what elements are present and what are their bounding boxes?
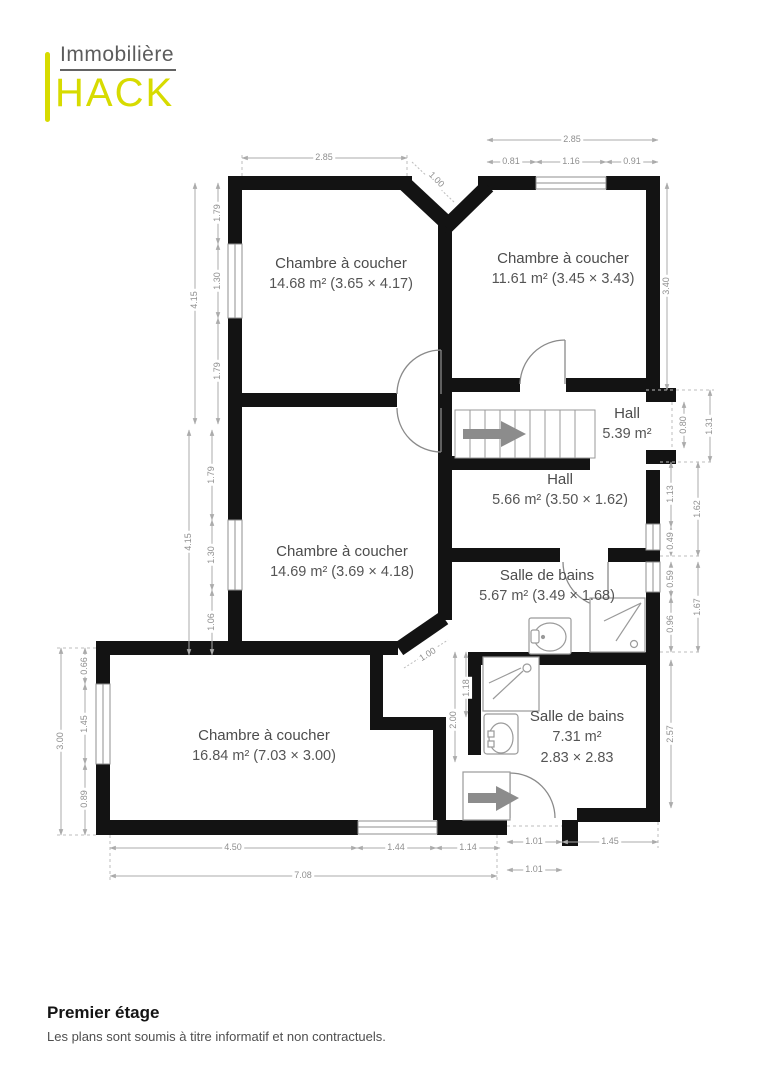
dimension-label: 4.15: [184, 531, 194, 553]
room-name: Chambre à coucher: [492, 248, 635, 269]
dimension-label: 1.79: [207, 464, 217, 486]
room-label-chambre-3: Chambre à coucher 14.69 m² (3.69 × 4.18): [270, 541, 414, 583]
room-area: 11.61 m² (3.45 × 3.43): [492, 269, 635, 290]
dimension-label: 1.31: [705, 415, 715, 437]
room-area: 14.68 m² (3.65 × 4.17): [269, 274, 413, 295]
room-name: Chambre à coucher: [192, 725, 336, 746]
dimension-label: 1.45: [80, 713, 90, 735]
dimension-label: 0.49: [666, 530, 676, 552]
room-label-hall-2: Hall 5.66 m² (3.50 × 1.62): [492, 469, 628, 511]
dimension-label: 0.80: [679, 414, 689, 436]
room-area: 5.67 m² (3.49 × 1.68): [479, 586, 615, 607]
disclaimer-text: Les plans sont soumis à titre informatif…: [47, 1029, 386, 1044]
dimension-label: 1.67: [693, 596, 703, 618]
room-label-chambre-4: Chambre à coucher 16.84 m² (7.03 × 3.00): [192, 725, 336, 767]
room-name: Chambre à coucher: [270, 541, 414, 562]
dimension-label: 4.50: [222, 843, 244, 853]
dimension-label: 3.40: [662, 275, 672, 297]
dimension-label: 3.00: [56, 730, 66, 752]
room-area: 5.39 m²: [602, 424, 651, 445]
room-name: Hall: [602, 403, 651, 424]
dimension-label: 0.59: [666, 568, 676, 590]
footer: Premier étage Les plans sont soumis à ti…: [47, 1003, 386, 1044]
dimension-label: 0.89: [80, 788, 90, 810]
dimension-label: 1.06: [207, 611, 217, 633]
dimension-label: 2.85: [561, 135, 583, 145]
dimension-label: 1.62: [693, 498, 703, 520]
floor-plan-page: Immobilière HACK: [0, 0, 768, 1087]
dimension-label: 7.08: [292, 871, 314, 881]
dimension-label: 2.57: [666, 723, 676, 745]
dimension-label: 1.30: [213, 270, 223, 292]
room-label-chambre-2: Chambre à coucher 11.61 m² (3.45 × 3.43): [492, 248, 635, 290]
room-name: Salle de bains: [479, 565, 615, 586]
dimension-label: 1.01: [523, 837, 545, 847]
dimension-label: 0.91: [621, 157, 643, 167]
dimension-label: 4.15: [190, 289, 200, 311]
dimension-label: 1.79: [213, 202, 223, 224]
dimension-label: 0.81: [500, 157, 522, 167]
room-label-salle-de-bains-2: Salle de bains 7.31 m² 2.83 × 2.83: [530, 706, 624, 768]
dimension-label: 1.18: [462, 677, 472, 699]
dimension-label: 1.30: [207, 544, 217, 566]
dimension-label: 1.44: [385, 843, 407, 853]
room-area: 5.66 m² (3.50 × 1.62): [492, 490, 628, 511]
room-name: Chambre à coucher: [269, 253, 413, 274]
room-name: Salle de bains: [530, 706, 624, 727]
room-area: 2.83 × 2.83: [530, 748, 624, 769]
dimension-label: 1.79: [213, 360, 223, 382]
dimension-label: 1.16: [560, 157, 582, 167]
room-area: 16.84 m² (7.03 × 3.00): [192, 746, 336, 767]
dimension-label: 0.66: [80, 655, 90, 677]
dimension-label: 1.14: [457, 843, 479, 853]
dimension-label: 2.00: [449, 709, 459, 731]
dimension-label: 1.45: [599, 837, 621, 847]
dimension-label: 0.96: [666, 613, 676, 635]
room-label-hall-1: Hall 5.39 m²: [602, 403, 651, 445]
dimension-label: 1.00: [425, 169, 447, 191]
dimension-label: 1.01: [523, 865, 545, 875]
room-area: 14.69 m² (3.69 × 4.18): [270, 562, 414, 583]
floor-title: Premier étage: [47, 1003, 386, 1023]
dimension-label: 2.85: [313, 153, 335, 163]
room-label-salle-de-bains-1: Salle de bains 5.67 m² (3.49 × 1.68): [479, 565, 615, 607]
room-name: Hall: [492, 469, 628, 490]
room-label-chambre-1: Chambre à coucher 14.68 m² (3.65 × 4.17): [269, 253, 413, 295]
dimension-label: 1.00: [416, 645, 440, 665]
dimension-label: 1.13: [666, 483, 676, 505]
room-area: 7.31 m²: [530, 727, 624, 748]
